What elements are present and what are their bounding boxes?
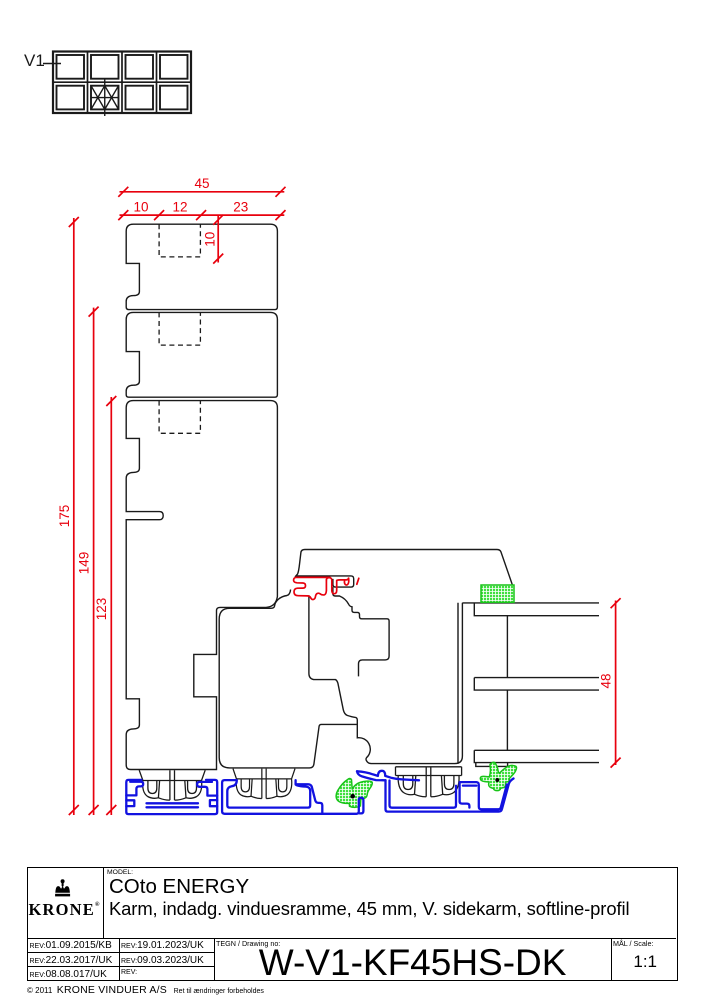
svg-text:123: 123	[94, 598, 109, 621]
svg-text:149: 149	[77, 552, 92, 575]
svg-text:23: 23	[233, 199, 248, 214]
svg-text:V1: V1	[24, 51, 45, 70]
svg-text:48: 48	[598, 673, 613, 688]
svg-text:45: 45	[194, 176, 209, 191]
svg-text:12: 12	[172, 199, 187, 214]
svg-text:175: 175	[57, 505, 72, 528]
svg-text:10: 10	[133, 199, 148, 214]
svg-text:10: 10	[203, 232, 218, 247]
